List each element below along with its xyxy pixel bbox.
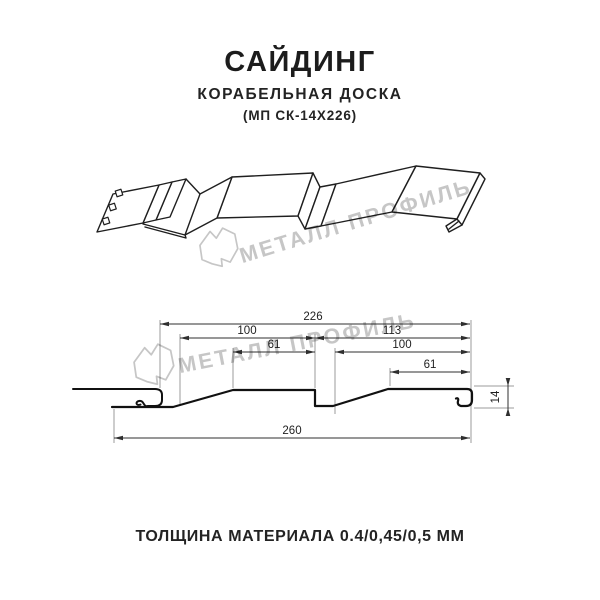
dimension-arrows — [114, 322, 510, 441]
dim-right-inner: 100 — [392, 339, 411, 351]
material-thickness-note: ТОЛЩИНА МАТЕРИАЛА 0.4/0,45/0,5 ММ — [0, 528, 600, 546]
dim-right-flat: 61 — [424, 359, 437, 371]
dim-left-flat: 61 — [268, 339, 281, 351]
profile-outline — [73, 389, 472, 407]
product-drawing-page: САЙДИНГ КОРАБЕЛЬНАЯ ДОСКА (МП СК-14Х226) — [0, 0, 600, 600]
dim-total-width: 226 — [303, 311, 322, 323]
dimension-labels: 226 100 113 61 100 61 260 14 — [237, 311, 502, 437]
dim-left-pitch: 100 — [237, 325, 256, 337]
header: САЙДИНГ КОРАБЕЛЬНАЯ ДОСКА (МП СК-14Х226) — [0, 0, 600, 123]
cross-section-drawing: 226 100 113 61 100 61 260 14 — [55, 290, 535, 460]
dimension-lines — [114, 324, 508, 438]
page-title: САЙДИНГ — [0, 46, 600, 79]
product-subtitle: КОРАБЕЛЬНАЯ ДОСКА — [0, 86, 600, 104]
dim-right-pitch: 113 — [383, 325, 401, 337]
dim-overall-width: 260 — [282, 425, 301, 437]
isometric-panel-drawing — [60, 150, 530, 290]
product-code: (МП СК-14Х226) — [0, 108, 600, 123]
dim-profile-height: 14 — [490, 390, 502, 403]
